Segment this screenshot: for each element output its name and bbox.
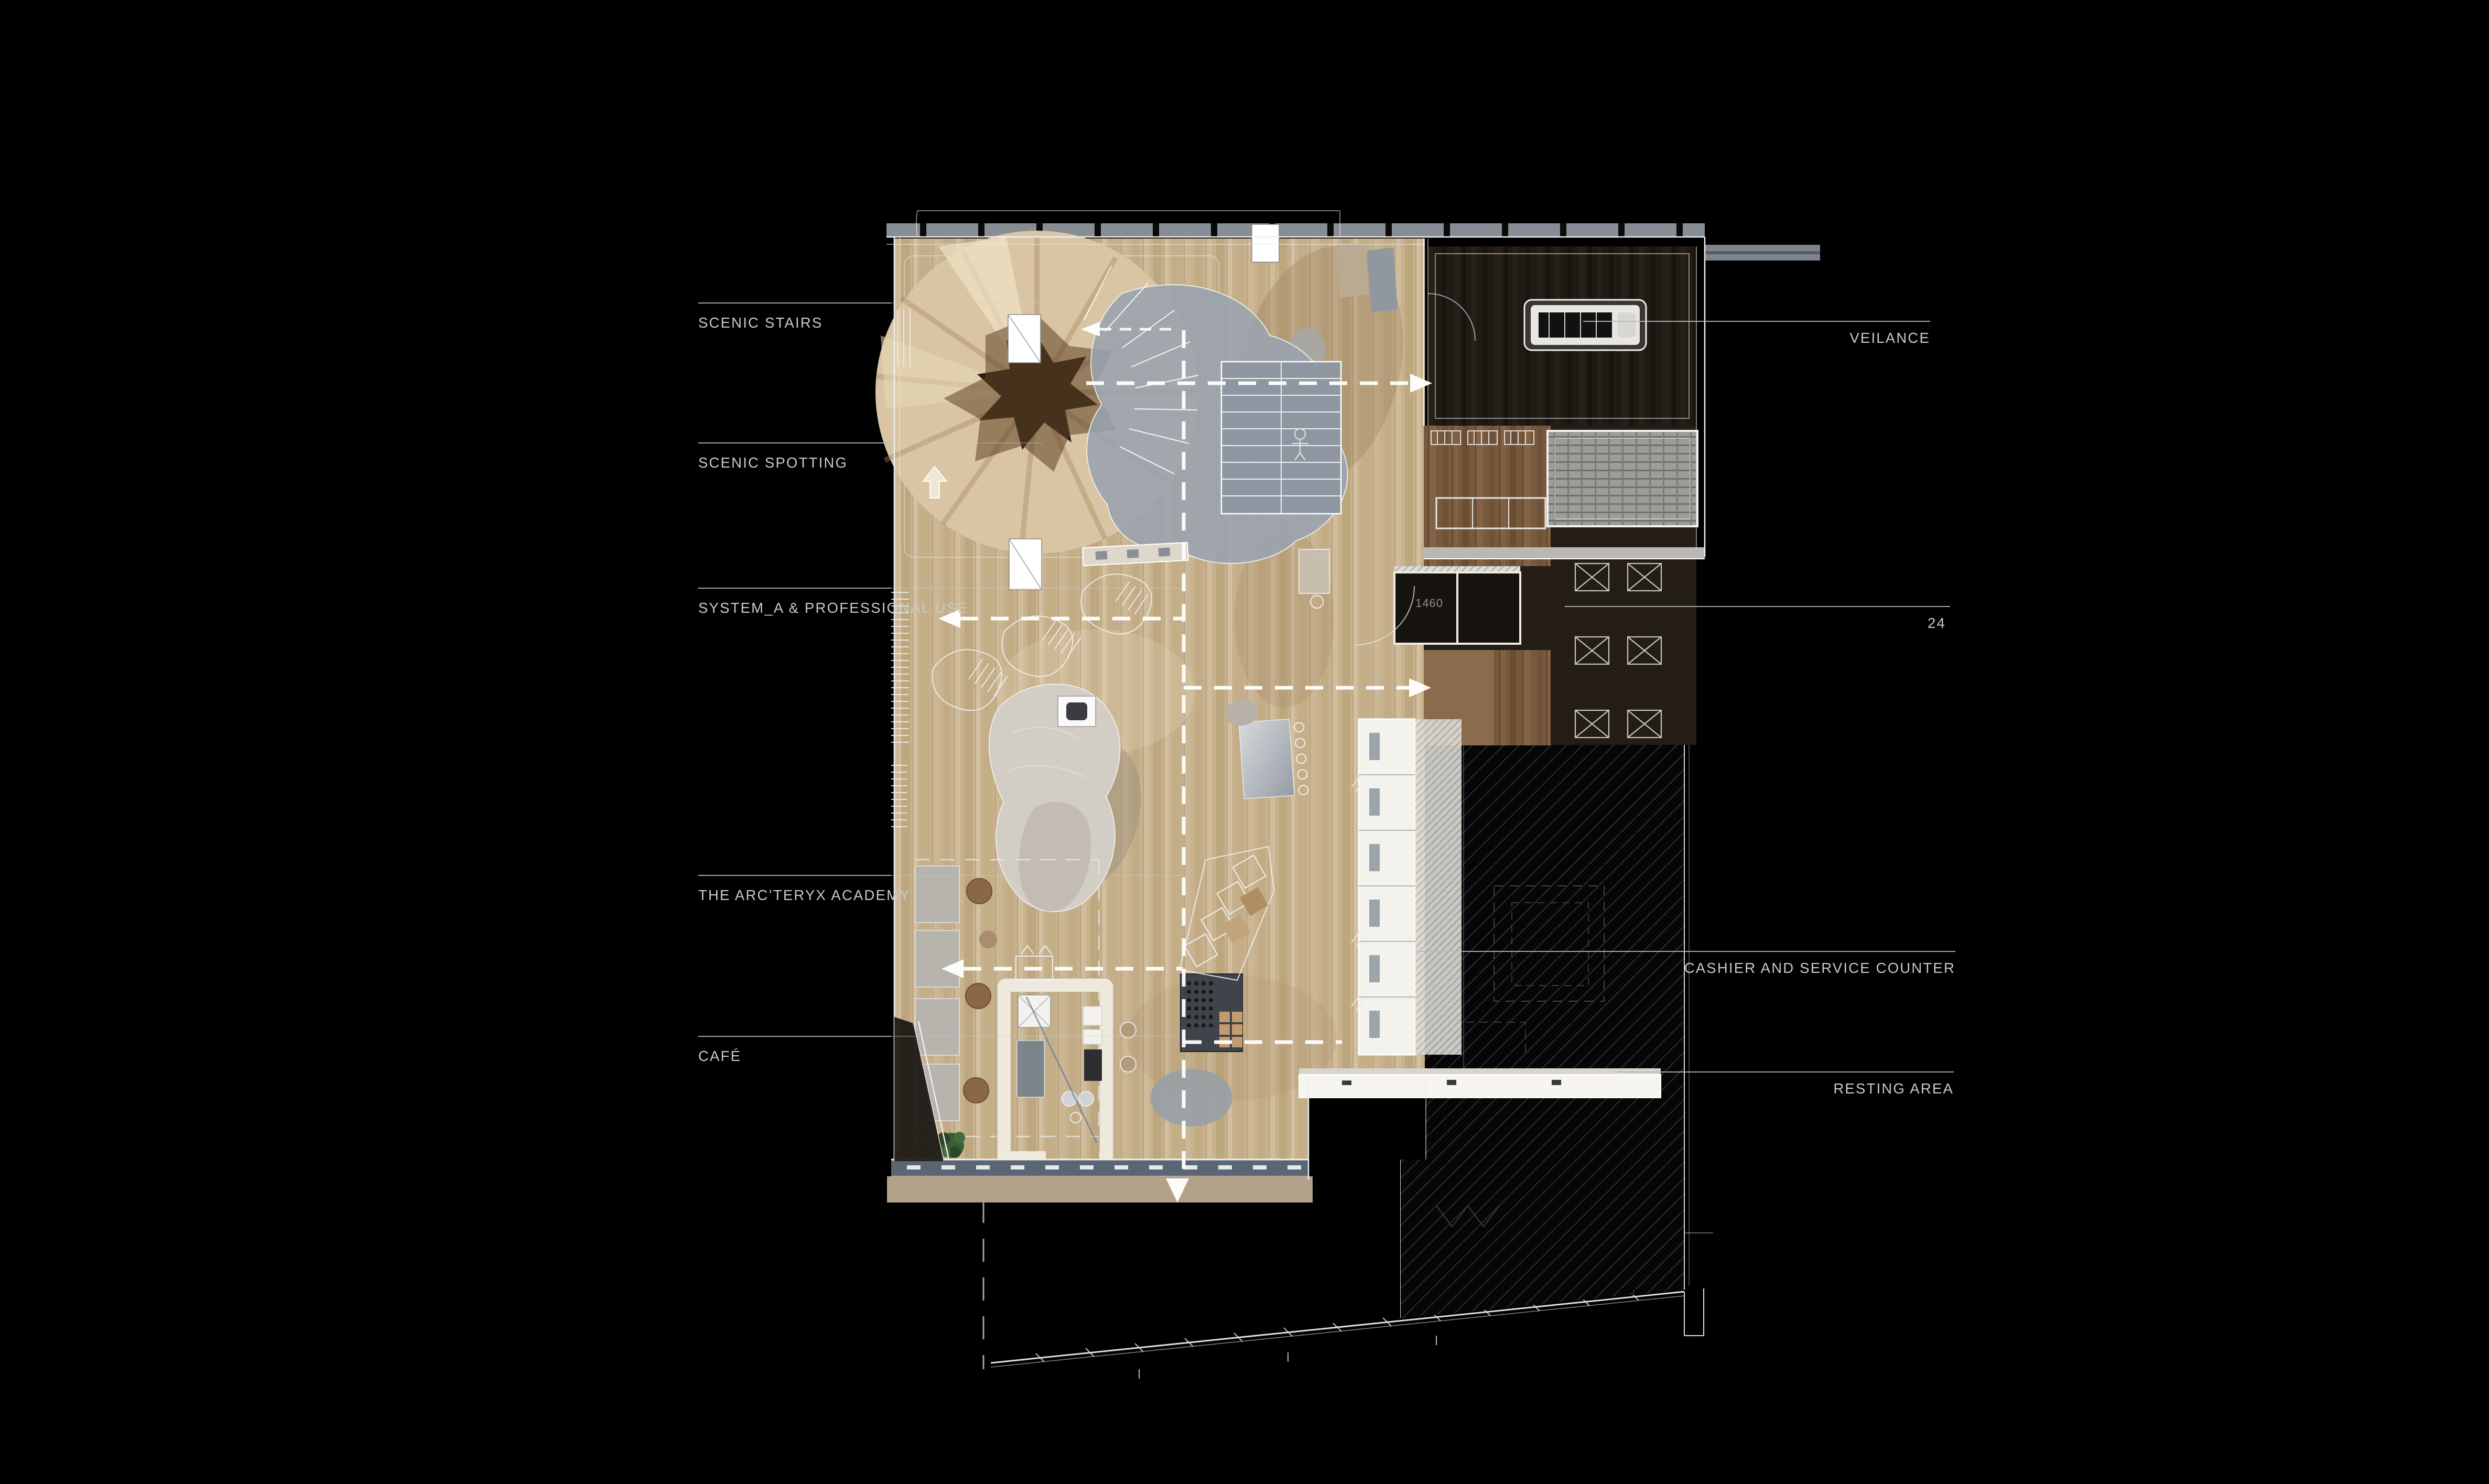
label-scenic-spotting: SCENIC SPOTTING (698, 454, 848, 471)
service-wall (1351, 719, 1462, 1055)
dimension-1460: 1460 (1415, 597, 1443, 610)
display-platform (1367, 247, 1398, 312)
side-table (979, 930, 997, 948)
label-scenic-stairs: SCENIC STAIRS (698, 315, 823, 331)
roof-bar-shadow (1705, 251, 1820, 254)
gear-locker (1181, 974, 1242, 1052)
label-academy: THE ARC’TERYX ACADEMY (698, 887, 911, 903)
cafe-stool (1120, 1022, 1136, 1038)
floor-plan-canvas: 1460 (0, 0, 2489, 1484)
sidewalk (887, 1176, 1313, 1203)
fitting-stalls (1394, 566, 1520, 644)
oval-rug (1151, 1069, 1232, 1126)
wood-stool (967, 879, 992, 904)
cafe-stool (1120, 1056, 1136, 1072)
display-table (1524, 300, 1646, 350)
storefront (887, 1160, 1313, 1203)
label-resting: RESTING AREA (1833, 1080, 1954, 1097)
wood-stool (964, 1078, 989, 1103)
cashier-counter (1299, 1068, 1661, 1098)
label-cashier: CASHIER AND SERVICE COUNTER (1684, 960, 1955, 976)
label-veilance: VEILANCE (1849, 330, 1930, 346)
label-24: 24 (1928, 615, 1946, 631)
belay-station (1058, 696, 1096, 727)
label-cafe: CAFÉ (698, 1048, 741, 1064)
display-platform (1336, 242, 1369, 298)
wood-stool (966, 983, 991, 1009)
label-system-a: SYSTEM_A & PROFESSIONAL USE (698, 600, 968, 616)
